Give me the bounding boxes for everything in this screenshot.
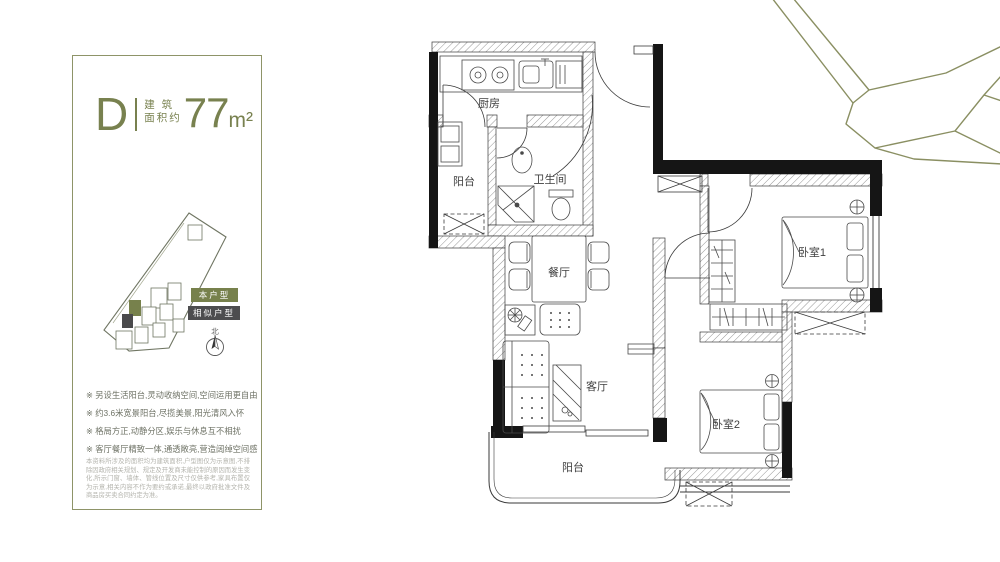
label-living: 客厅	[586, 379, 608, 393]
entry-door	[595, 46, 653, 107]
windows	[680, 216, 879, 492]
duct-shaft	[658, 176, 702, 192]
bedside-lamp	[766, 455, 779, 468]
site-similar-unit	[122, 314, 133, 328]
wall-kitchen-top	[432, 42, 595, 52]
plan-letter: D	[95, 94, 128, 134]
area-labels: 建 筑 面积约	[144, 99, 182, 125]
wall-bath-bottom	[488, 225, 593, 236]
label-service-balcony: 阳台	[453, 174, 475, 188]
shower	[498, 186, 534, 222]
legend-similar-label: 相似户型	[193, 307, 235, 319]
bedside-lamp	[766, 375, 779, 388]
compass-icon: 北	[197, 322, 235, 360]
feature-item: ※ 另设生活阳台,灵动收纳空间,空间运用更自由	[86, 386, 254, 404]
label-bathroom: 卫生间	[534, 172, 567, 186]
label-bedroom2: 卧室2	[712, 417, 740, 431]
sofa	[503, 341, 549, 433]
bedside-lamp	[850, 288, 864, 302]
balcony-balustrade	[489, 432, 680, 503]
wall-kitchen-bottom-b	[487, 115, 497, 127]
legend-current-badge: 本户型	[191, 288, 238, 302]
decor-plant-stand	[505, 305, 535, 335]
area-value: 77	[184, 94, 229, 132]
legend-similar-badge: 相似户型	[188, 306, 240, 320]
floorplan-drawing: 厨房 阳台 卫生间 餐厅 客厅 卧室1 卧室2 阳台	[420, 30, 900, 532]
wardrobe-1	[709, 240, 735, 302]
corridor-closet	[710, 304, 787, 330]
feature-item: ※ 客厅餐厅精致一体,通透敞亮,营造阔绰空间感	[86, 440, 254, 458]
balcony-sliding-door	[523, 426, 648, 436]
area-label-top: 建 筑	[144, 99, 182, 112]
washing-machine	[438, 122, 462, 166]
kitchen-counter	[440, 56, 582, 92]
fridge	[556, 61, 582, 88]
label-bedroom1: 卧室1	[798, 245, 826, 259]
tv-cabinet	[628, 344, 654, 354]
floorplan-page: D 建 筑 面积约 77 m² 本户型	[0, 0, 1000, 562]
kitchen-sink	[519, 59, 553, 88]
label-kitchen: 厨房	[478, 97, 500, 110]
wall-balcony-bath-divider	[488, 127, 496, 225]
stove	[462, 60, 514, 90]
label-balcony: 阳台	[562, 460, 584, 474]
wall-bedroom1-bottom	[782, 300, 882, 312]
info-card: D 建 筑 面积约 77 m² 本户型	[72, 55, 262, 510]
feature-item: ※ 约3.6米宽景阳台,尽揽美景,阳光清风入怀	[86, 404, 254, 422]
feature-list: ※ 另设生活阳台,灵动收纳空间,空间运用更自由 ※ 约3.6米宽景阳台,尽揽美景…	[86, 386, 254, 458]
coffee-table	[553, 365, 581, 421]
label-dining: 餐厅	[548, 265, 570, 279]
wall-kitchen-bottom-c	[527, 115, 583, 127]
wall-hall-left	[583, 52, 593, 236]
bedroom1-door	[708, 188, 752, 232]
compass-north-label: 北	[211, 327, 219, 336]
bedside-lamp	[850, 200, 864, 214]
plan-title: D 建 筑 面积约 77 m²	[95, 94, 253, 134]
site-current-unit	[129, 300, 141, 316]
wall-bedroom2-bottom	[665, 468, 792, 480]
wall-corridor	[653, 238, 665, 348]
disclaimer-text: 本资料所涉及的面积均为建筑面积,户型图仅为示意图,不排除因政府相关规划、规定及开…	[86, 458, 250, 501]
title-divider	[135, 98, 137, 131]
wall-bedroom2-left	[653, 348, 665, 418]
area-unit: m²	[228, 109, 253, 133]
wall-bedroom2-top	[700, 332, 782, 342]
wash-basin	[512, 147, 532, 173]
area-label-bottom: 面积约	[144, 112, 182, 125]
armchair	[540, 304, 580, 335]
toilet	[549, 190, 573, 220]
legend-current-label: 本户型	[199, 289, 231, 301]
wall-service-balcony-bottom	[429, 236, 505, 248]
wall-bedroom1-top	[750, 174, 882, 186]
feature-item: ※ 格局方正,动静分区,娱乐与休息互不相扰	[86, 422, 254, 440]
